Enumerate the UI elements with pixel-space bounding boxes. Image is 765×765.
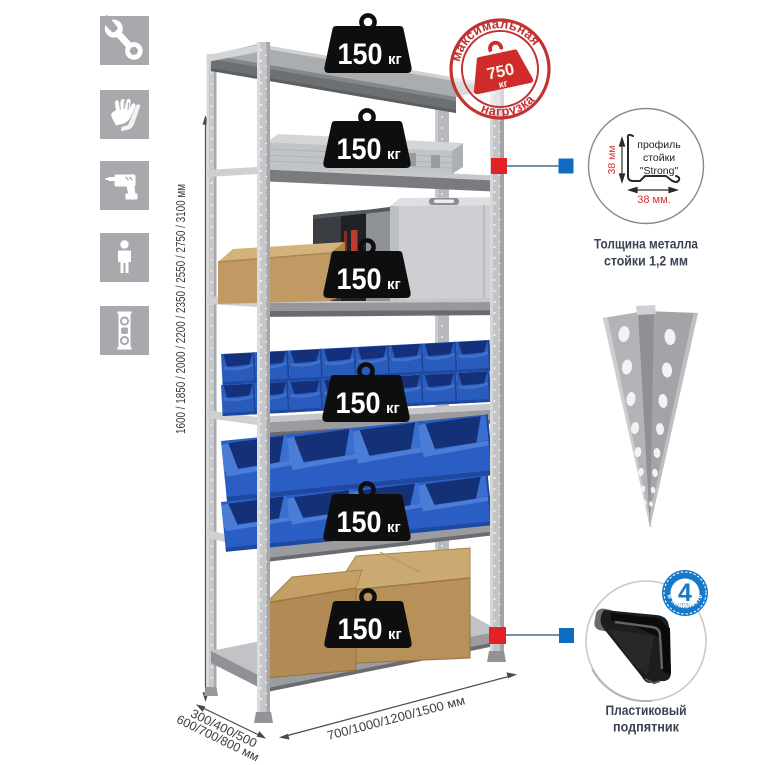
svg-text:Толщина металла: Толщина металла — [594, 237, 698, 252]
svg-text:Пластиковый: Пластиковый — [606, 703, 687, 718]
svg-text:профиль: профиль — [637, 139, 681, 151]
svg-text:стойки 1,2 мм: стойки 1,2 мм — [604, 254, 688, 269]
svg-text:"Strong": "Strong" — [640, 165, 679, 177]
svg-text:1600 / 1850 / 2000 / 2200 / 23: 1600 / 1850 / 2000 / 2200 / 2350 / 2550 … — [173, 184, 188, 434]
svg-text:38 мм: 38 мм — [606, 145, 618, 174]
svg-text:38 мм.: 38 мм. — [637, 194, 670, 206]
svg-text:подпятник: подпятник — [613, 720, 679, 735]
svg-text:стойки: стойки — [643, 152, 675, 164]
